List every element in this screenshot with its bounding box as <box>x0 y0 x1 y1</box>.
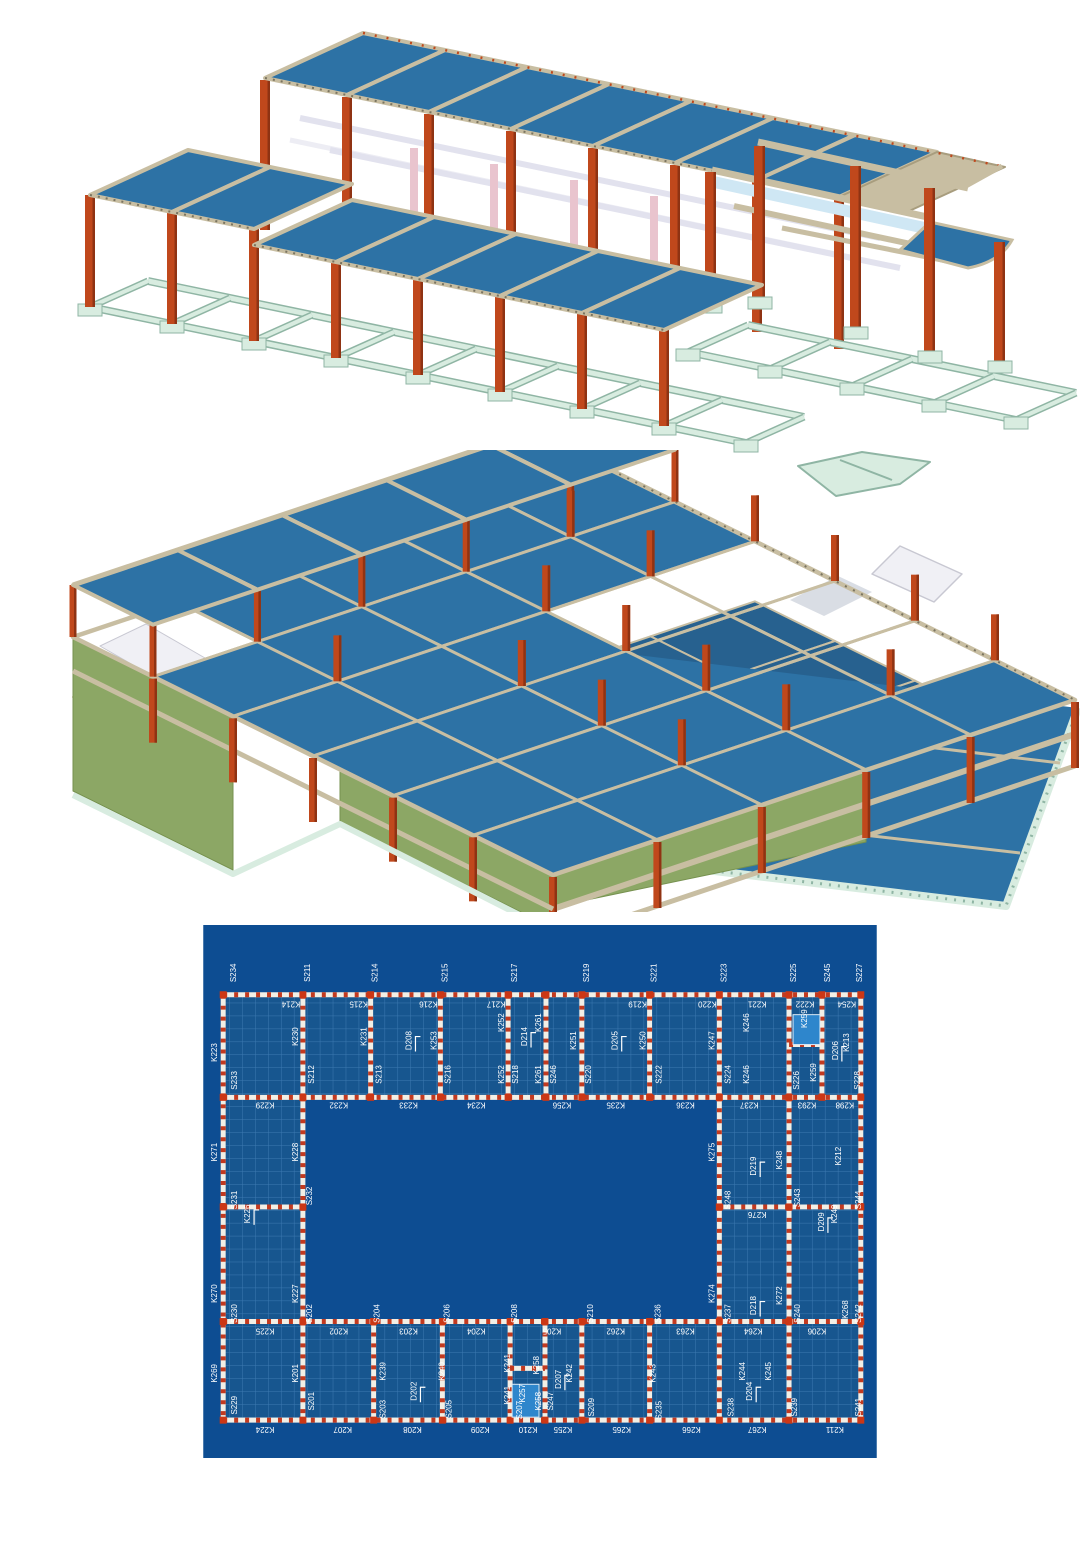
plan-label: K201 <box>291 1363 300 1382</box>
plan-label: K264 <box>743 1326 762 1335</box>
plan-label: S216 <box>443 1065 452 1084</box>
plan-label: D214 <box>520 1026 529 1046</box>
plan-label: S214 <box>371 963 380 982</box>
plan-label: K211 <box>825 1425 844 1434</box>
plan-label: S231 <box>230 1190 239 1209</box>
plan-label: S229 <box>230 1395 239 1414</box>
plan-label: S243 <box>793 1188 802 1207</box>
plan-label: S247 <box>546 1391 555 1410</box>
plan-label: K234 <box>466 1100 485 1109</box>
plan-label: S219 <box>582 963 591 982</box>
structural-model-page: S234S211S214S215S217S219S221S223S225S245… <box>0 0 1080 1560</box>
plan-label: S246 <box>549 1065 558 1084</box>
plan-label: S232 <box>305 1186 314 1205</box>
plan-label: K259 <box>800 1009 809 1028</box>
plan-label: K255 <box>553 1425 572 1434</box>
plan-label: K249 <box>830 1204 839 1223</box>
plan-label: D218 <box>749 1295 758 1315</box>
plan-label: K261 <box>534 1013 543 1032</box>
plan-label: K272 <box>775 1286 784 1305</box>
plan-label: S203 <box>379 1399 388 1418</box>
plan-label: K216 <box>419 1000 438 1009</box>
plan-label: K267 <box>747 1425 766 1434</box>
plan-label: S217 <box>510 963 519 982</box>
plan-label: S248 <box>723 1190 732 1209</box>
plan-label: K225 <box>255 1326 274 1335</box>
plan-label: S208 <box>510 1304 519 1323</box>
plan-label: K268 <box>841 1300 850 1319</box>
plan-label: K202 <box>329 1326 348 1335</box>
plan-label: K228 <box>291 1142 300 1161</box>
plan-label: K246 <box>742 1013 751 1032</box>
plan-label: S224 <box>723 1065 732 1084</box>
plan-label: S201 <box>307 1391 316 1410</box>
plan-label: K298 <box>835 1100 854 1109</box>
plan-label: D205 <box>611 1030 620 1050</box>
plan-label: S204 <box>373 1304 382 1323</box>
plan-label: K293 <box>797 1100 816 1109</box>
plan-label: S212 <box>307 1065 316 1084</box>
plan-label: K245 <box>764 1361 773 1380</box>
plan-label: S225 <box>789 963 798 982</box>
plan-label: S213 <box>375 1065 384 1084</box>
plan-label: K220 <box>698 1000 717 1009</box>
plan-label: K223 <box>210 1043 219 1062</box>
plan-label: K217 <box>486 1000 505 1009</box>
plan-label: D204 <box>745 1381 754 1401</box>
plan-label: K210 <box>518 1425 537 1434</box>
foundation-grid-right <box>676 325 1076 429</box>
plan-label: K244 <box>738 1361 747 1380</box>
plan-label: D209 <box>817 1212 826 1232</box>
plan-label: K239 <box>379 1361 388 1380</box>
view-3d-middle <box>0 450 1080 912</box>
plan-label: K241 <box>503 1385 512 1404</box>
plan-label: K207 <box>333 1425 352 1434</box>
plan-label: S222 <box>655 1065 664 1084</box>
plan-label: K214 <box>281 1000 300 1009</box>
plan-label: K252 <box>497 1065 506 1084</box>
plan-label: S234 <box>229 963 238 982</box>
plan-label: K203 <box>399 1326 418 1335</box>
plan-label: S221 <box>650 963 659 982</box>
plan-label: K230 <box>291 1027 300 1046</box>
plan-label: D219 <box>749 1156 758 1176</box>
plan-label: K226 <box>243 1204 252 1223</box>
plan-label: K250 <box>639 1031 648 1050</box>
plan-label: K259 <box>809 1063 818 1082</box>
plan-label: K208 <box>403 1425 422 1434</box>
plan-label: K237 <box>739 1100 758 1109</box>
plan-label: K236 <box>676 1100 695 1109</box>
plan-label: K254 <box>837 1000 856 1009</box>
plan-label: K275 <box>707 1142 716 1161</box>
plan-label: K258 <box>534 1391 543 1410</box>
plan-label: S207 <box>515 1400 524 1419</box>
plan-label: K221 <box>747 1000 766 1009</box>
plan-label: S245 <box>823 963 832 982</box>
plan-label: S210 <box>586 1304 595 1323</box>
plan-label: S209 <box>587 1397 596 1416</box>
plan-label: S244 <box>854 1190 863 1209</box>
plan-label: K213 <box>842 1033 851 1052</box>
plan-label: K229 <box>255 1100 274 1109</box>
plan-label: K248 <box>775 1150 784 1169</box>
plan-label: K274 <box>707 1284 716 1303</box>
plan-label: K241 <box>503 1353 512 1372</box>
plan-label: K232 <box>329 1100 348 1109</box>
plan-label: K235 <box>606 1100 625 1109</box>
plan-label: K261 <box>534 1065 543 1084</box>
plan-label: K253 <box>429 1031 438 1050</box>
plan-label: S226 <box>792 1071 801 1090</box>
plan-label: K246 <box>742 1065 751 1084</box>
plan-label: S237 <box>723 1304 732 1323</box>
plan-label: S241 <box>854 1397 863 1416</box>
plan-label: D206 <box>831 1040 840 1060</box>
plan-label: S239 <box>790 1397 799 1416</box>
plan-label: K212 <box>834 1146 843 1165</box>
detached-footing <box>798 452 930 496</box>
plan-label: K219 <box>628 1000 647 1009</box>
plan-label: S233 <box>230 1071 239 1090</box>
plan-label: K224 <box>255 1425 274 1434</box>
plan-label: S206 <box>442 1304 451 1323</box>
plan-label: K209 <box>470 1425 489 1434</box>
plan-label: K271 <box>210 1142 219 1161</box>
plan-label: K247 <box>707 1031 716 1050</box>
plan-label: K243 <box>649 1363 658 1382</box>
plan-label: K270 <box>210 1284 219 1303</box>
plan-label: K205 <box>542 1326 561 1335</box>
plan-label: D208 <box>404 1030 413 1050</box>
plan-label: S205 <box>444 1399 453 1418</box>
plan-label: K257 <box>518 1383 527 1402</box>
view-3d-upper <box>0 0 1080 470</box>
plan-label: D207 <box>554 1369 563 1389</box>
plan-label: K252 <box>497 1013 506 1032</box>
plan-label: K276 <box>747 1210 766 1219</box>
plan-label: S230 <box>230 1304 239 1323</box>
plan-label: S220 <box>584 1065 593 1084</box>
plan-label: K258 <box>532 1355 541 1374</box>
plan-label: K215 <box>349 1000 368 1009</box>
plan-label: K256 <box>552 1100 571 1109</box>
plan-label: S235 <box>655 1400 664 1419</box>
plan-label: S227 <box>855 963 864 982</box>
floor-plan: S234S211S214S215S217S219S221S223S225S245… <box>202 925 878 1458</box>
plan-label: K233 <box>399 1100 418 1109</box>
plan-label: K266 <box>682 1425 701 1434</box>
plan-label: K206 <box>807 1326 826 1335</box>
plan-label: K204 <box>466 1326 485 1335</box>
plan-label: S211 <box>303 963 312 982</box>
plan-label: S228 <box>853 1071 862 1090</box>
plan-label: S242 <box>854 1304 863 1323</box>
plan-label: K240 <box>437 1361 446 1380</box>
plan-label: K265 <box>612 1425 631 1434</box>
plan-label: S236 <box>654 1304 663 1323</box>
plan-label: K222 <box>795 1000 814 1009</box>
plan-label: K231 <box>360 1027 369 1046</box>
plan-label: S223 <box>719 963 728 982</box>
plan-label: S202 <box>305 1304 314 1323</box>
plan-label: S240 <box>793 1304 802 1323</box>
plan-label: S218 <box>511 1065 520 1084</box>
plan-label: K242 <box>565 1363 574 1382</box>
plan-label: K227 <box>291 1284 300 1303</box>
plan-label: S238 <box>726 1397 735 1416</box>
plan-label: K262 <box>606 1326 625 1335</box>
plan-label: K269 <box>210 1363 219 1382</box>
plan-label: K251 <box>569 1031 578 1050</box>
plan-label: S215 <box>440 963 449 982</box>
plan-label: D202 <box>409 1381 418 1401</box>
plan-label: K263 <box>676 1326 695 1335</box>
